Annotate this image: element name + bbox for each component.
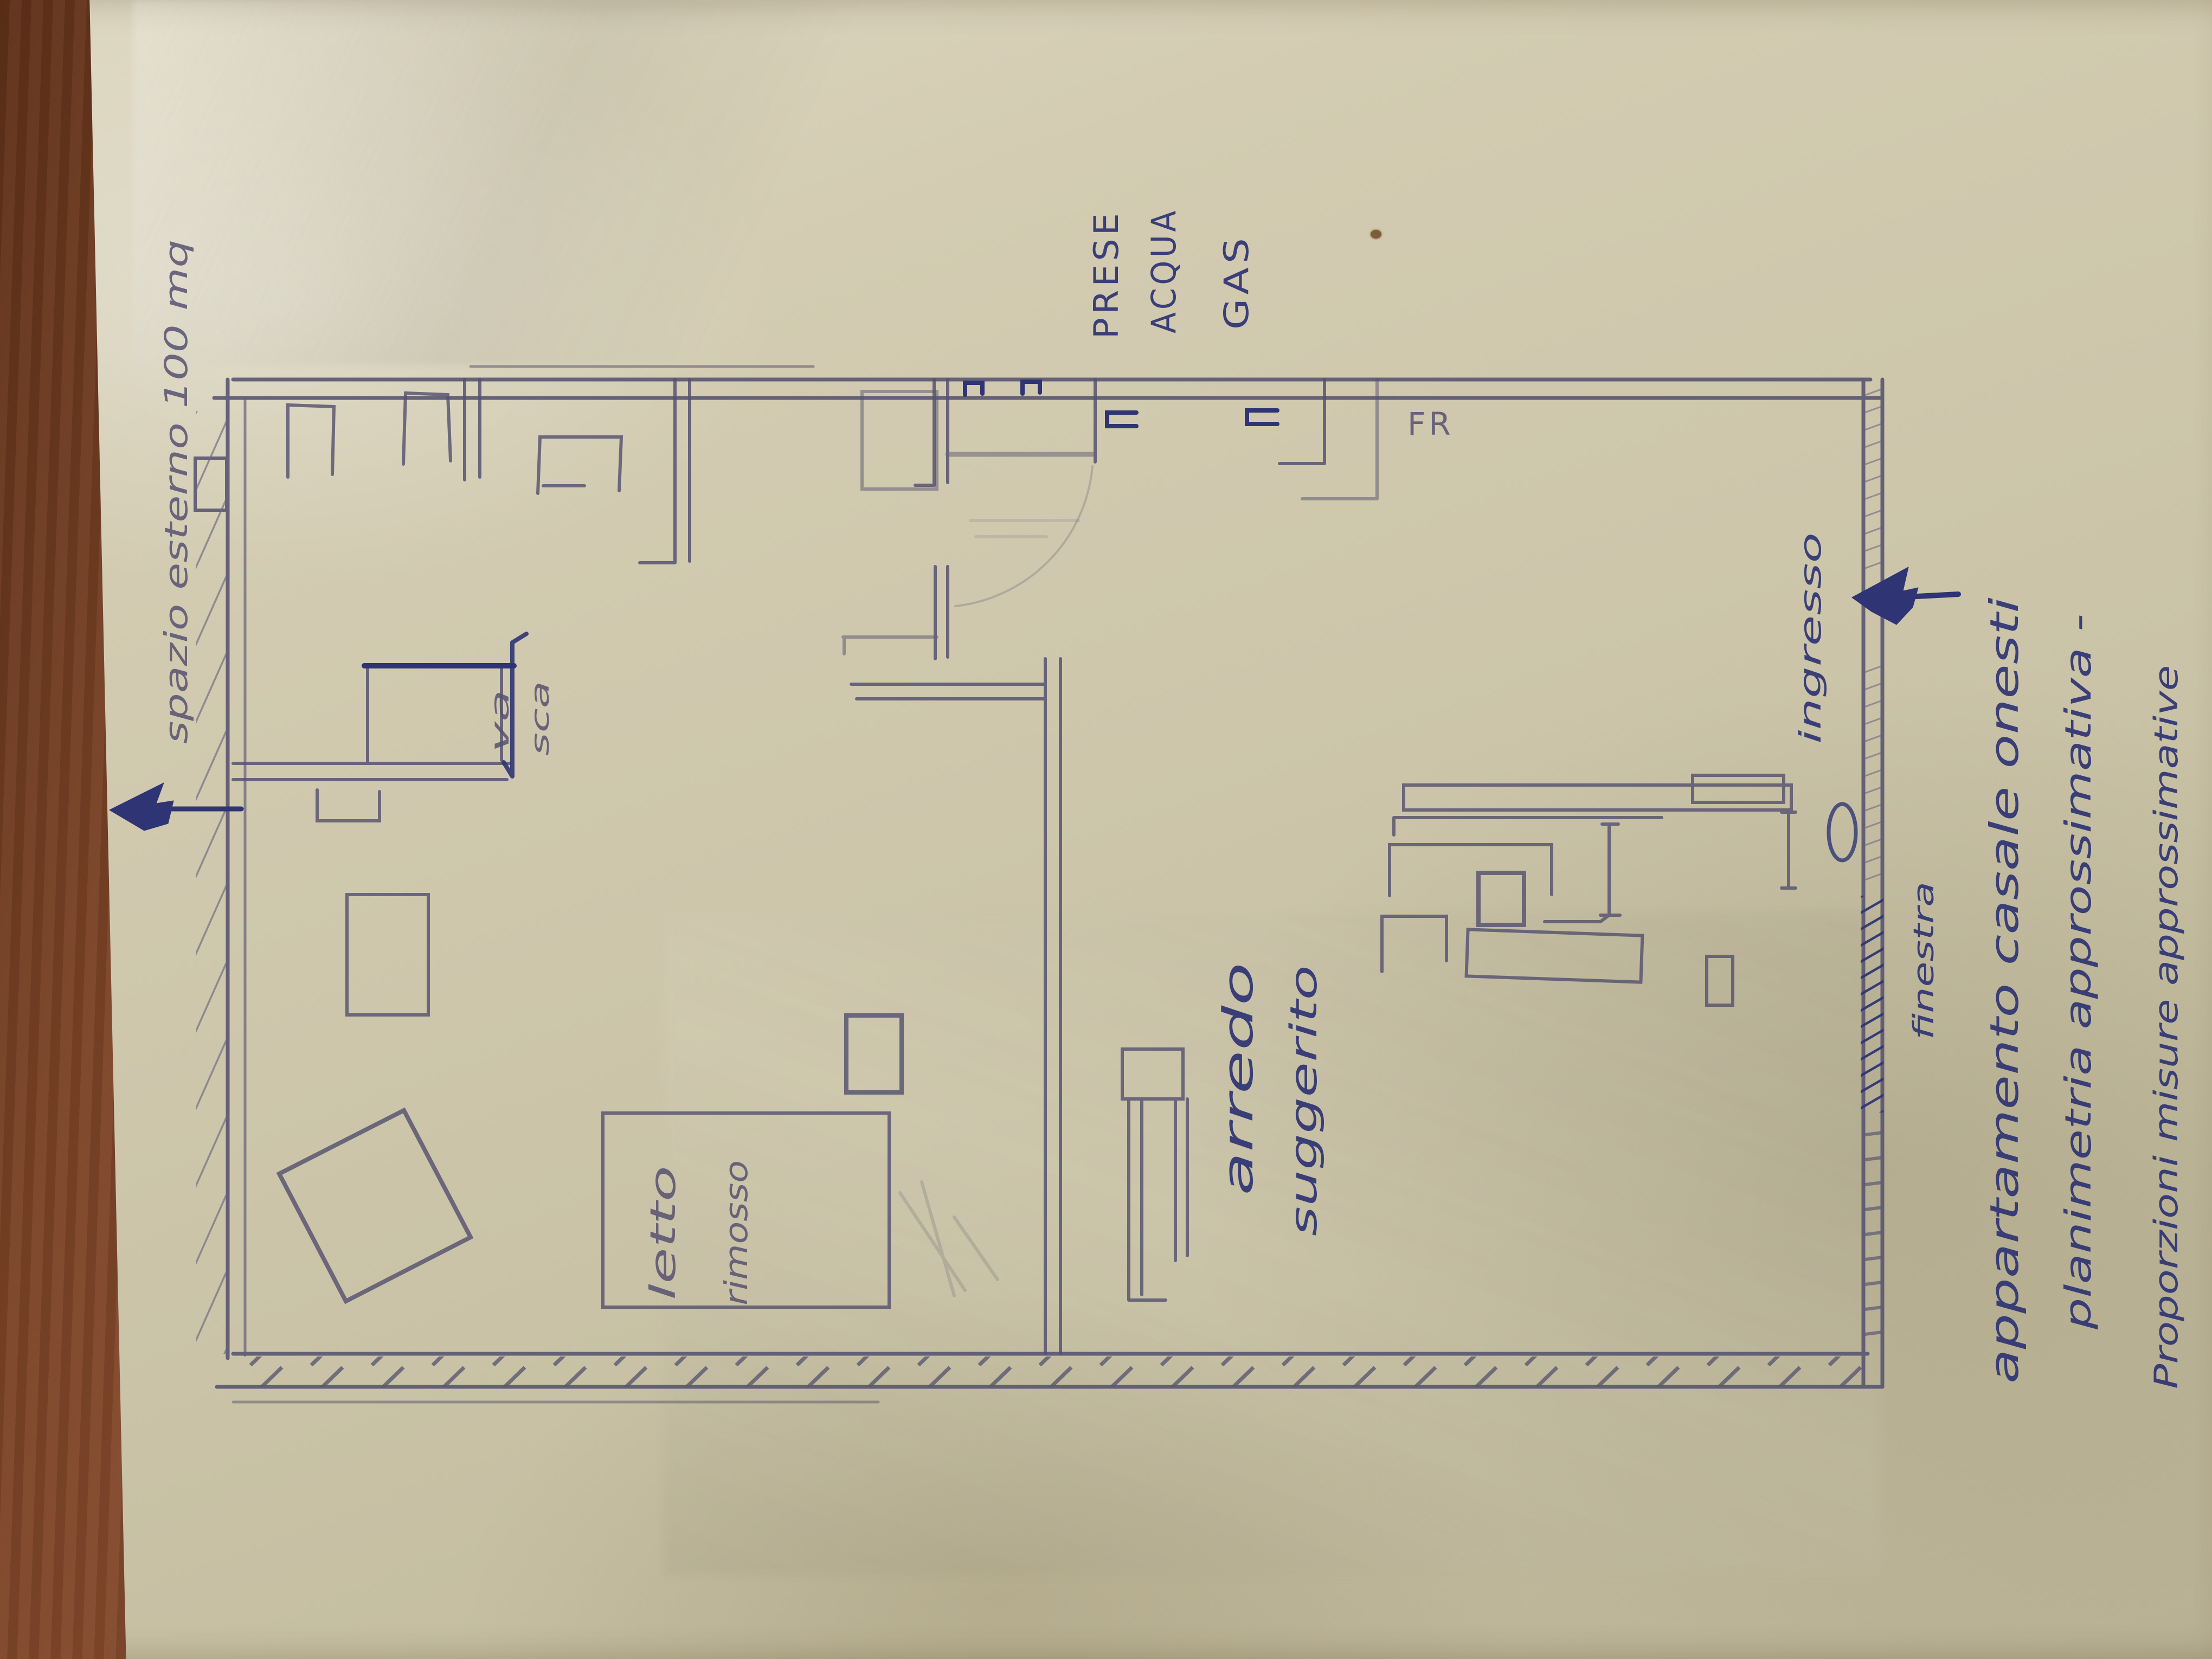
label-title-1: appartamento casale onesti — [1982, 597, 2027, 1384]
corridor-door-jamb — [851, 684, 1045, 699]
label-window: finestra — [1908, 882, 1940, 1040]
wall-hatching — [196, 383, 1883, 1387]
label-bathtub-1: va — [485, 690, 515, 753]
entry-partition-a — [1279, 380, 1324, 464]
small-table — [846, 1015, 902, 1092]
wardrobe-room-c — [862, 391, 937, 489]
coffee-table — [1478, 873, 1524, 925]
socket-icon — [1247, 410, 1277, 424]
pen-symbols — [965, 382, 1277, 426]
cupboard-top — [1693, 775, 1784, 802]
label-fridge: FR — [1407, 406, 1454, 442]
right-wall-hatch-bottom — [1864, 1118, 1881, 1354]
label-entrance: ingresso — [1793, 532, 1828, 744]
sofa-long — [1404, 785, 1791, 810]
interior-walls — [233, 380, 1377, 1354]
armchair — [1382, 916, 1446, 972]
partition-stub — [935, 567, 948, 659]
bathtub-box-sides — [368, 666, 501, 762]
bottom-wall-hatch — [234, 1356, 1866, 1387]
socket-icon — [1023, 382, 1040, 394]
seat-top — [1122, 1049, 1183, 1099]
outdoor-arrow-icon — [110, 783, 173, 831]
dresser — [347, 895, 428, 1015]
left-exterior-hatch — [196, 411, 227, 1354]
socket-icon — [965, 383, 982, 395]
room-b-bottom-wall — [843, 637, 937, 654]
seat-legs — [1129, 1099, 1187, 1300]
room-a-bottom-wall — [233, 763, 510, 780]
label-bed-removed-2: rimosso — [718, 1160, 755, 1306]
fixture-room-b — [538, 437, 621, 493]
label-title-3: Proporzioni misure approssimative — [2147, 665, 2185, 1389]
right-wall-hatch-top — [1864, 383, 1881, 573]
label-title-2: planimetria approssimativa - — [2057, 614, 2099, 1330]
side-bar — [1600, 824, 1620, 915]
erased-kitchen-notes — [970, 520, 1079, 537]
fixture-room-a-2 — [403, 393, 451, 464]
partition-room-b-c — [640, 380, 690, 563]
furniture-pencil — [279, 391, 1796, 1307]
partition-kitchen-left — [915, 380, 948, 485]
label-outdoor-space: spazio esterno 100 mq — [158, 240, 195, 744]
label-bed-removed-1: letto — [644, 1166, 684, 1300]
sofa-line — [1394, 818, 1662, 835]
socket-icon — [1107, 413, 1136, 426]
label-utilities-3: GAS — [1217, 234, 1256, 330]
label-furniture-2: suggerito — [1283, 965, 1326, 1236]
fixture-room-a-1 — [288, 405, 334, 477]
tilted-bed — [279, 1110, 471, 1301]
label-bathtub-2: sca — [525, 681, 555, 756]
pen-walls — [364, 634, 1856, 860]
floor-plan-sketch: spazio esterno 100 mq PRESE ACQUA GAS FR… — [0, 0, 2212, 1659]
window-heavy-hatch — [1861, 896, 1883, 1113]
label-furniture-1: arredo — [1214, 962, 1262, 1195]
fixture-below-wall — [317, 790, 380, 821]
sofa-bottom — [1467, 929, 1643, 982]
right-wall-hatch-mid — [1864, 660, 1881, 888]
label-utilities-1: PRESE — [1086, 210, 1126, 339]
erased-sketch — [900, 1182, 998, 1296]
corridor-wall — [1045, 659, 1060, 1354]
small-box-right — [1707, 956, 1733, 1005]
partition-room-a-b — [465, 380, 480, 480]
cupboard-line — [1782, 812, 1796, 888]
sofa-two — [1390, 845, 1552, 896]
window-symbol — [1829, 804, 1856, 860]
label-utilities-2: ACQUA — [1144, 208, 1184, 333]
